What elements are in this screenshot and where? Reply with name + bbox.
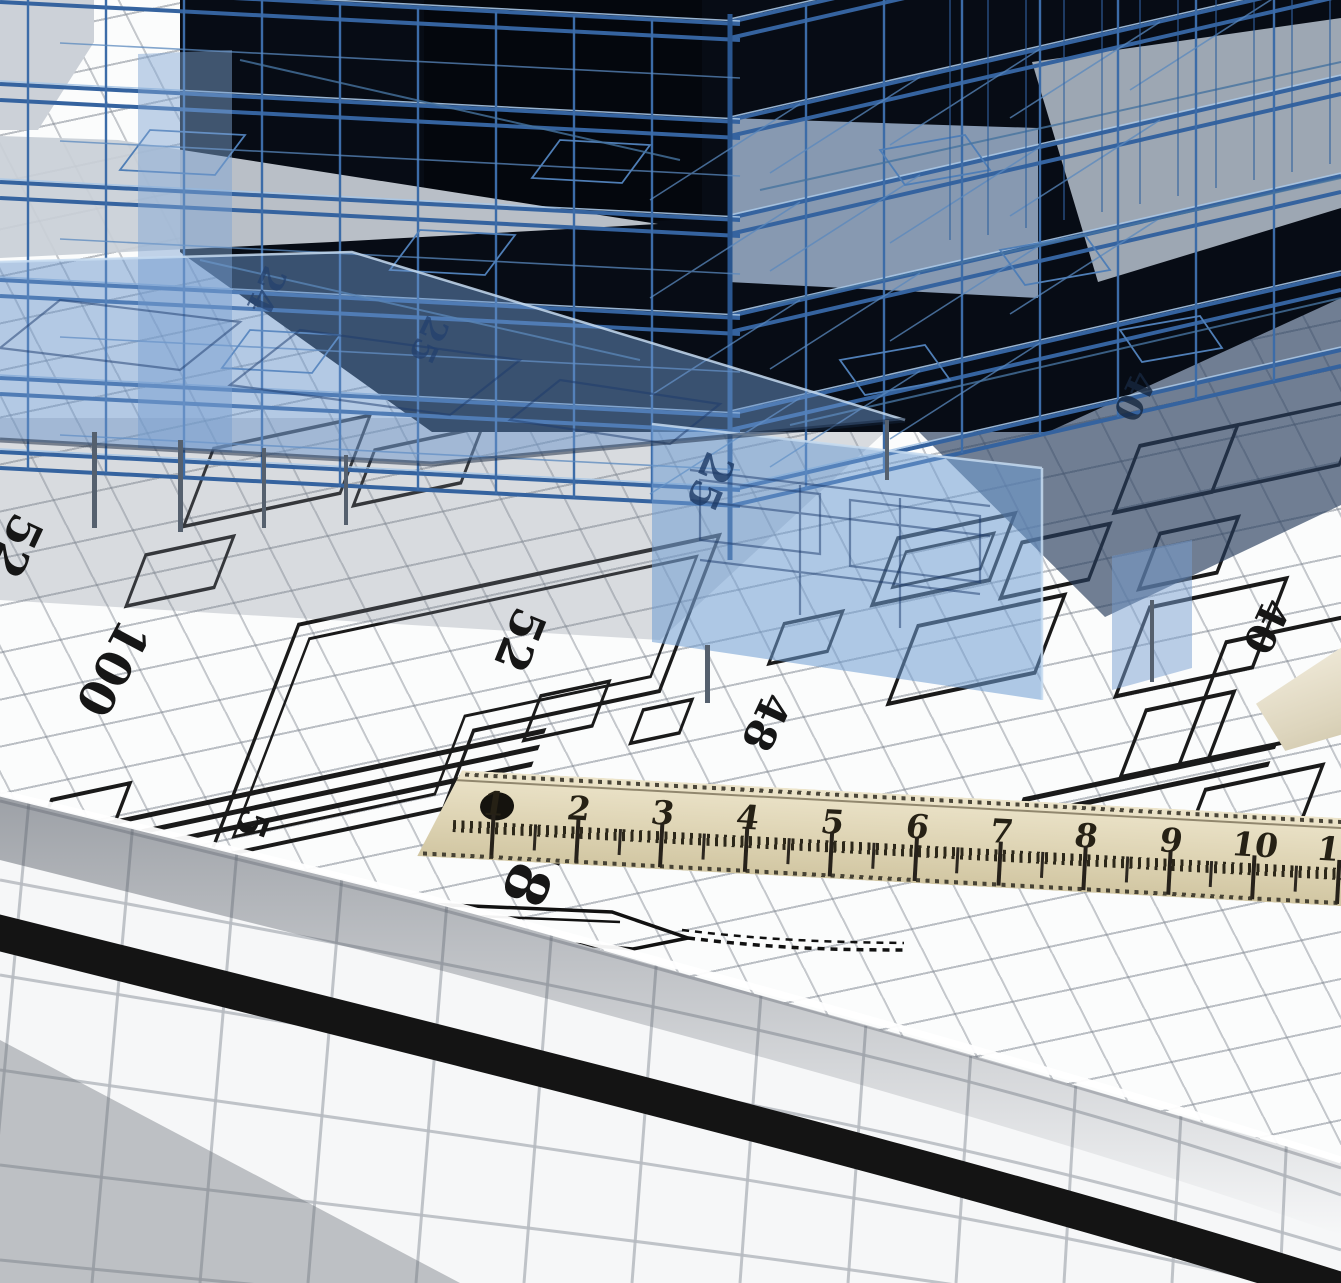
- ruler-tick-half: [702, 834, 706, 860]
- ruler-tick-half: [533, 824, 537, 850]
- ruler-tick-half: [617, 829, 621, 855]
- background-sky: [0, 0, 94, 130]
- ruler-tick-half: [1125, 856, 1129, 882]
- ruler-tick-half: [1040, 852, 1044, 878]
- wireframe-building-model: [0, 0, 1341, 720]
- ruler-tick-half: [1209, 861, 1213, 887]
- ruler-tick-half: [1294, 866, 1298, 892]
- ruler-tick-half: [955, 847, 959, 873]
- ruler-tick-half: [786, 838, 790, 864]
- ruler-tick-half: [871, 843, 875, 869]
- architectural-blueprint-scene: 5210052484054824252540 1234567891011: [0, 0, 1341, 1283]
